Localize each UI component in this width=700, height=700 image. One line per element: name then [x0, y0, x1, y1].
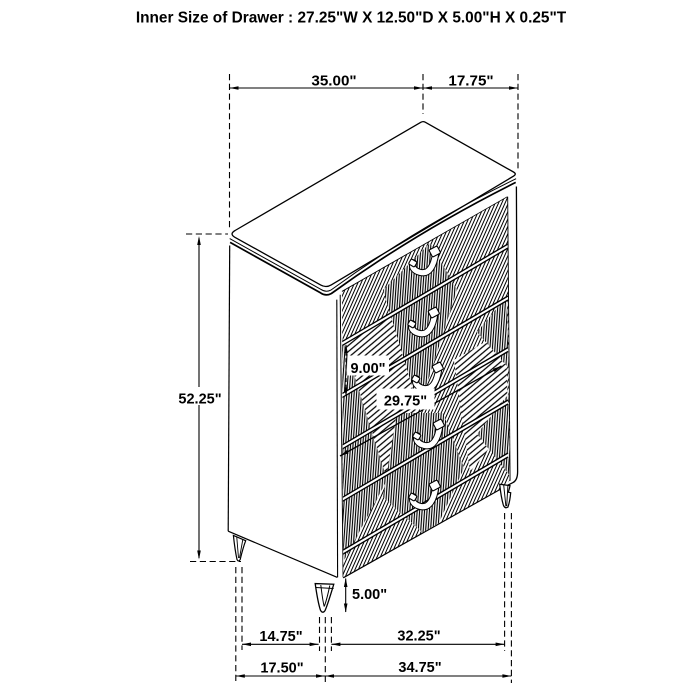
svg-text:52.25": 52.25": [178, 392, 221, 408]
svg-text:5.00": 5.00": [352, 587, 387, 603]
svg-text:17.75": 17.75": [448, 73, 493, 90]
svg-text:32.25": 32.25": [397, 629, 440, 645]
svg-text:17.50": 17.50": [260, 661, 303, 677]
svg-text:35.00": 35.00": [311, 73, 356, 90]
svg-text:9.00": 9.00": [350, 361, 385, 377]
svg-text:14.75": 14.75": [259, 629, 302, 645]
svg-text:Inner Size of Drawer : 27.25"W: Inner Size of Drawer : 27.25"W X 12.50"D…: [136, 10, 567, 27]
svg-text:29.75": 29.75": [384, 394, 427, 410]
svg-text:34.75": 34.75": [398, 660, 441, 676]
